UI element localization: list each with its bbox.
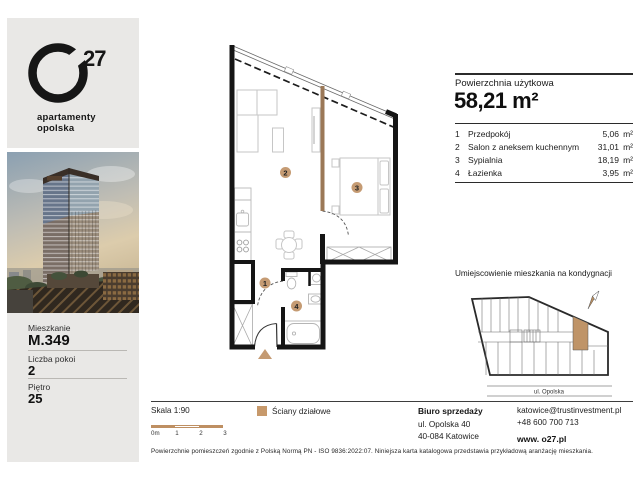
room-name: Łazienka xyxy=(468,168,589,178)
marker-3: 3 xyxy=(355,184,359,193)
divider xyxy=(455,73,633,75)
partition-wall-legend-label: Ściany działowe xyxy=(272,407,331,416)
bathroom-fixtures xyxy=(284,272,323,347)
bedroom-furniture xyxy=(327,158,391,262)
table-row: 2 Salon z aneksem kuchennym 31,01 m² xyxy=(455,140,633,153)
divider xyxy=(28,378,127,379)
scale-tick: 0m xyxy=(151,430,161,437)
scale-tick: 1 xyxy=(172,430,182,437)
entrance-wardrobe xyxy=(233,304,253,347)
room-area: 18,19 xyxy=(589,155,619,165)
divider xyxy=(28,350,127,351)
marker-2: 2 xyxy=(283,169,287,178)
pietro-value: 25 xyxy=(28,391,42,406)
room-no: 1 xyxy=(455,129,468,139)
room-name: Salon z aneksem kuchennym xyxy=(468,142,589,152)
room-name: Sypialnia xyxy=(468,155,589,165)
sales-office-title: Biuro sprzedaży xyxy=(418,406,483,416)
building-render-image xyxy=(7,152,139,313)
room-unit: m² xyxy=(619,129,633,139)
logo-subtitle-line2: opolska xyxy=(37,123,96,134)
room-unit: m² xyxy=(619,155,633,165)
room-name: Przedpokój xyxy=(468,129,589,139)
room-no: 4 xyxy=(455,168,468,178)
usable-area-value: 58,21 m² xyxy=(454,88,538,114)
sales-office-address-line2: 40-084 Katowice xyxy=(418,432,479,441)
floor-location-title: Umiejscowienie mieszkania na kondygnacji xyxy=(455,269,612,278)
table-row: 3 Sypialnia 18,19 m² xyxy=(455,153,633,166)
scale-label: Skala 1:90 xyxy=(151,406,190,415)
north-arrow-icon xyxy=(588,291,599,309)
liczba-pokoi-value: 2 xyxy=(28,363,35,378)
legal-disclaimer: Powierzchnie pomieszczeń zgodnie z Polsk… xyxy=(151,448,593,455)
marker-1: 1 xyxy=(263,279,267,288)
scale-bar-segment xyxy=(199,425,223,428)
street-label: ul. Opolska xyxy=(534,390,565,396)
scale-bar-segment xyxy=(175,425,199,428)
brand-logo-block: 27 apartamenty opolska xyxy=(7,18,139,148)
room-no: 3 xyxy=(455,155,468,165)
room-no: 2 xyxy=(455,142,468,152)
floor-location-map: ul. Opolska xyxy=(452,286,634,400)
room-unit: m² xyxy=(619,168,633,178)
room-unit: m² xyxy=(619,142,633,152)
room-area: 5,06 xyxy=(589,129,619,139)
kitchen-annex xyxy=(235,188,252,262)
logo-number: 27 xyxy=(83,46,106,71)
contact-website: www. o27.pl xyxy=(517,434,566,444)
table-row: 4 Łazienka 3,95 m² xyxy=(455,166,633,179)
contact-phone: +48 600 700 713 xyxy=(517,418,579,427)
scale-tick: 2 xyxy=(196,430,206,437)
table-row: 1 Przedpokój 5,06 m² xyxy=(455,127,633,140)
floor-plan-drawing: 1 2 3 4 xyxy=(150,10,450,400)
entrance-arrow-icon xyxy=(258,349,272,359)
room-area: 31,01 xyxy=(589,142,619,152)
room-area: 3,95 xyxy=(589,168,619,178)
contact-email: katowice@trustinvestment.pl xyxy=(517,406,621,415)
scale-bar-segment xyxy=(151,425,175,428)
entrance-door-swing xyxy=(255,324,277,348)
logo-subtitle: apartamenty opolska xyxy=(37,112,96,134)
logo-subtitle-line1: apartamenty xyxy=(37,112,96,123)
catalog-card-page: 27 apartamenty opolska xyxy=(0,0,640,480)
sales-office-address-line1: ul. Opolska 40 xyxy=(418,420,470,429)
scale-tick: 3 xyxy=(220,430,230,437)
mieszkanie-value: M.349 xyxy=(28,332,70,349)
footer-divider xyxy=(151,401,633,402)
room-list-table: 1 Przedpokój 5,06 m² 2 Salon z aneksem k… xyxy=(455,123,633,183)
partition-wall-legend-swatch xyxy=(257,406,267,416)
apartment-info-panel: Mieszkanie M.349 Liczba pokoi 2 Piętro 2… xyxy=(7,313,139,462)
